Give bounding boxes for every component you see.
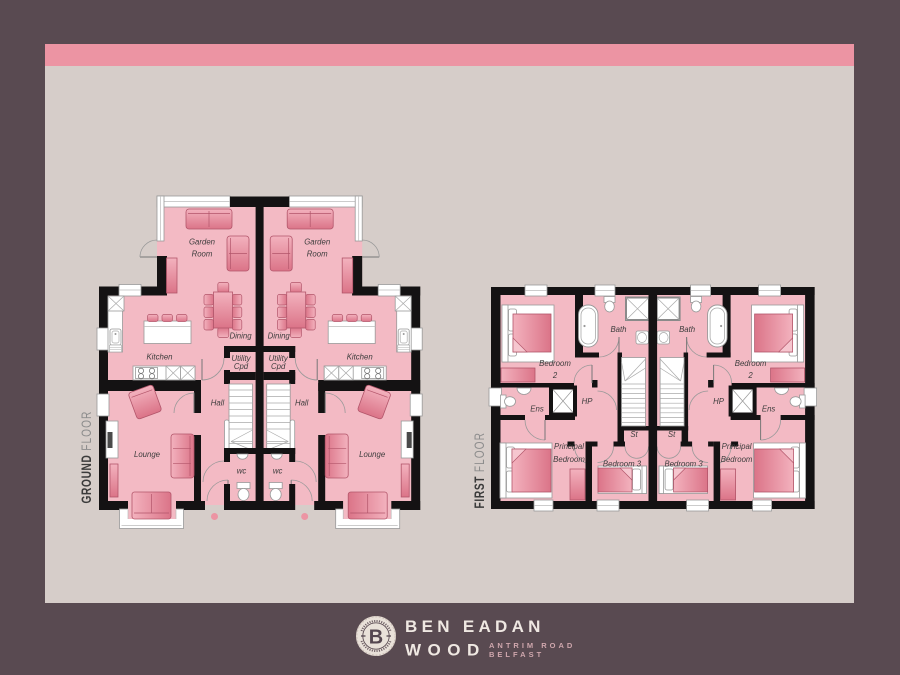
svg-text:Bedroom: Bedroom bbox=[735, 359, 767, 368]
svg-text:St: St bbox=[668, 430, 676, 439]
svg-text:Bedroom: Bedroom bbox=[539, 359, 571, 368]
svg-text:HP: HP bbox=[582, 397, 594, 406]
svg-text:ANTRIM ROAD: ANTRIM ROAD bbox=[489, 641, 575, 650]
svg-text:BELFAST: BELFAST bbox=[489, 650, 544, 659]
svg-text:Garden: Garden bbox=[189, 238, 215, 247]
svg-text:Bedroom 3: Bedroom 3 bbox=[603, 460, 642, 469]
svg-text:Lounge: Lounge bbox=[134, 450, 161, 459]
svg-text:Principal: Principal bbox=[554, 442, 584, 451]
svg-text:wc: wc bbox=[273, 467, 283, 476]
svg-text:Ens: Ens bbox=[762, 405, 776, 414]
svg-text:Bedroom: Bedroom bbox=[721, 455, 753, 464]
svg-text:Kitchen: Kitchen bbox=[146, 353, 172, 362]
svg-text:Hall: Hall bbox=[295, 399, 309, 408]
svg-text:wc: wc bbox=[237, 467, 247, 476]
svg-text:Bedroom: Bedroom bbox=[553, 455, 585, 464]
svg-text:GROUNDFLOOR: GROUNDFLOOR bbox=[79, 411, 95, 504]
svg-text:B: B bbox=[369, 627, 383, 649]
svg-text:BEN EADAN: BEN EADAN bbox=[405, 617, 545, 636]
svg-text:HP: HP bbox=[713, 397, 725, 406]
svg-text:Ens: Ens bbox=[530, 405, 544, 414]
svg-text:St: St bbox=[630, 430, 638, 439]
svg-text:Dining: Dining bbox=[229, 332, 252, 341]
svg-text:Kitchen: Kitchen bbox=[347, 353, 373, 362]
svg-text:Cpd: Cpd bbox=[271, 362, 286, 371]
svg-text:Bedroom 3: Bedroom 3 bbox=[665, 460, 704, 469]
svg-text:Principal: Principal bbox=[722, 442, 752, 451]
svg-text:2: 2 bbox=[747, 371, 753, 380]
svg-text:FIRSTFLOOR: FIRSTFLOOR bbox=[472, 432, 488, 508]
svg-text:Lounge: Lounge bbox=[359, 450, 386, 459]
svg-text:Room: Room bbox=[192, 250, 213, 259]
svg-text:Bath: Bath bbox=[679, 325, 695, 334]
svg-text:Hall: Hall bbox=[211, 399, 225, 408]
svg-text:2: 2 bbox=[552, 371, 558, 380]
svg-text:WOOD: WOOD bbox=[405, 641, 486, 660]
svg-text:Room: Room bbox=[307, 250, 328, 259]
svg-text:Garden: Garden bbox=[304, 238, 330, 247]
svg-text:Cpd: Cpd bbox=[234, 362, 249, 371]
svg-text:Dining: Dining bbox=[268, 332, 291, 341]
svg-text:Bath: Bath bbox=[610, 325, 626, 334]
